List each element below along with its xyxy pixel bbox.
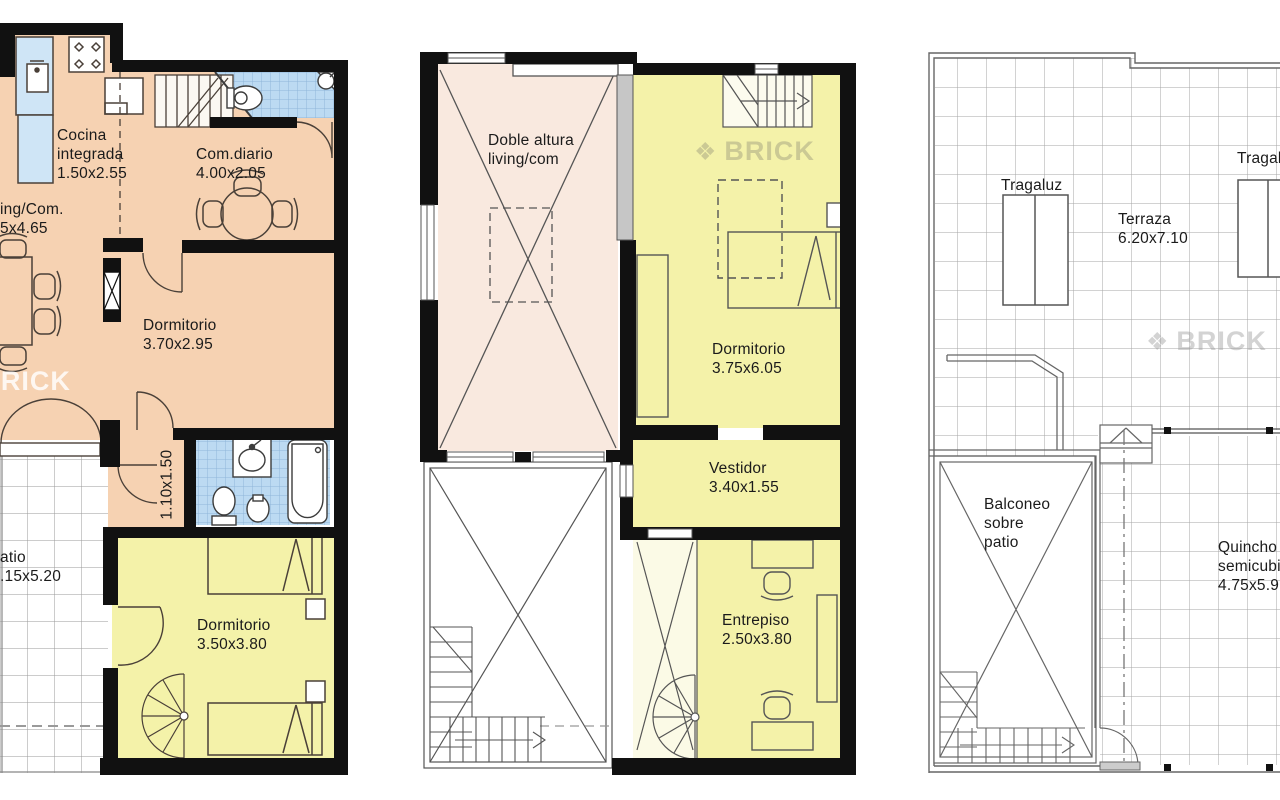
label-patio-cut: atio .15x5.20 — [0, 548, 61, 586]
brick-logo-icon: ❖ — [1146, 327, 1169, 357]
brick-watermark-text: BRICK — [1176, 326, 1267, 357]
label-entrepiso: Entrepiso 2.50x3.80 — [722, 611, 792, 649]
label-dormitorio-2: Dormitorio 3.50x3.80 — [197, 616, 270, 654]
label-doble-altura: Doble altura living/com — [488, 131, 574, 169]
plan1-ground-floor — [0, 23, 348, 775]
plan3-skylight-1 — [1003, 195, 1068, 305]
plan3-terrace-grid-strip — [935, 430, 1098, 456]
plan2-gray-wall — [617, 75, 633, 240]
plan3-quincho-grid — [1100, 436, 1280, 765]
plan1-patio — [0, 455, 108, 773]
label-paso: 1.10x1.50 — [157, 440, 176, 530]
label-dormitorio-1: Dormitorio 3.70x2.95 — [143, 316, 216, 354]
brick-watermark: ❖ BRICK — [1146, 326, 1267, 357]
label-cocina: Cocina integrada 1.50x2.55 — [57, 126, 127, 184]
label-tragaluz-1: Tragaluz — [1001, 176, 1062, 195]
plan2-bedroom-stairs — [723, 75, 812, 127]
label-comdiario: Com.diario 4.00x2.05 — [196, 145, 273, 183]
label-tragaluz-2: Tragal — [1237, 149, 1280, 168]
plan1-stove — [69, 37, 104, 72]
plans-drawing — [0, 0, 1280, 800]
label-vestidor: Vestidor 3.40x1.55 — [709, 459, 779, 497]
floor-plan-sheet: Cocina integrada 1.50x2.55 ing/Com. 5x4.… — [0, 0, 1280, 800]
label-living-cut: ing/Com. 5x4.65 — [0, 200, 64, 238]
brick-watermark: ❖ BRICK — [694, 136, 815, 167]
label-dormitorio-p2: Dormitorio 3.75x6.05 — [712, 340, 785, 378]
brick-watermark-text: BRICK — [724, 136, 815, 167]
plan3-roof-terrace — [929, 53, 1280, 773]
label-terraza: Terraza 6.20x7.10 — [1118, 210, 1188, 248]
label-balconeo: Balconeo sobre patio — [984, 495, 1050, 553]
plan3-skylight-2 — [1238, 180, 1280, 277]
brick-watermark: ❖ BRICK — [0, 366, 71, 397]
plan1-column-symbol — [104, 272, 120, 310]
plan1-kitchen-island — [105, 78, 143, 114]
plan1-kitchen-counter — [16, 37, 53, 183]
plan2-lower-void — [424, 462, 612, 768]
plan3-chimney — [1100, 425, 1152, 463]
brick-watermark-text: BRICK — [0, 366, 71, 397]
label-quincho: Quincho semicubi 4.75x5.9 — [1218, 538, 1280, 596]
brick-logo-icon: ❖ — [694, 137, 717, 167]
